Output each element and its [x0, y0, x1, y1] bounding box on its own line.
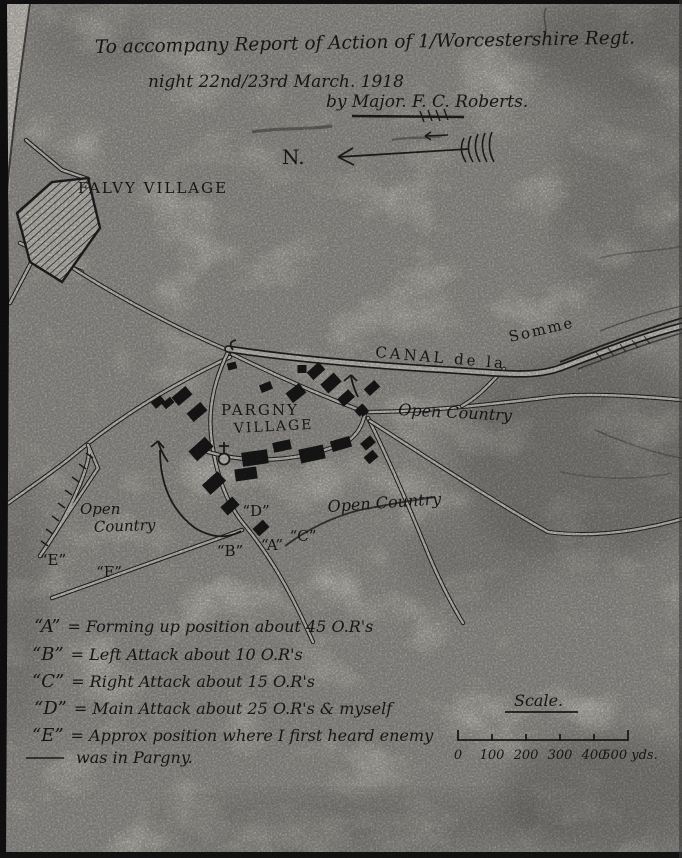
scanned-map-page: To accompany Report of Action of 1/Worce…: [0, 0, 682, 858]
map-drawing: To accompany Report of Action of 1/Worce…: [0, 0, 682, 858]
grain-overlay: [0, 0, 682, 858]
